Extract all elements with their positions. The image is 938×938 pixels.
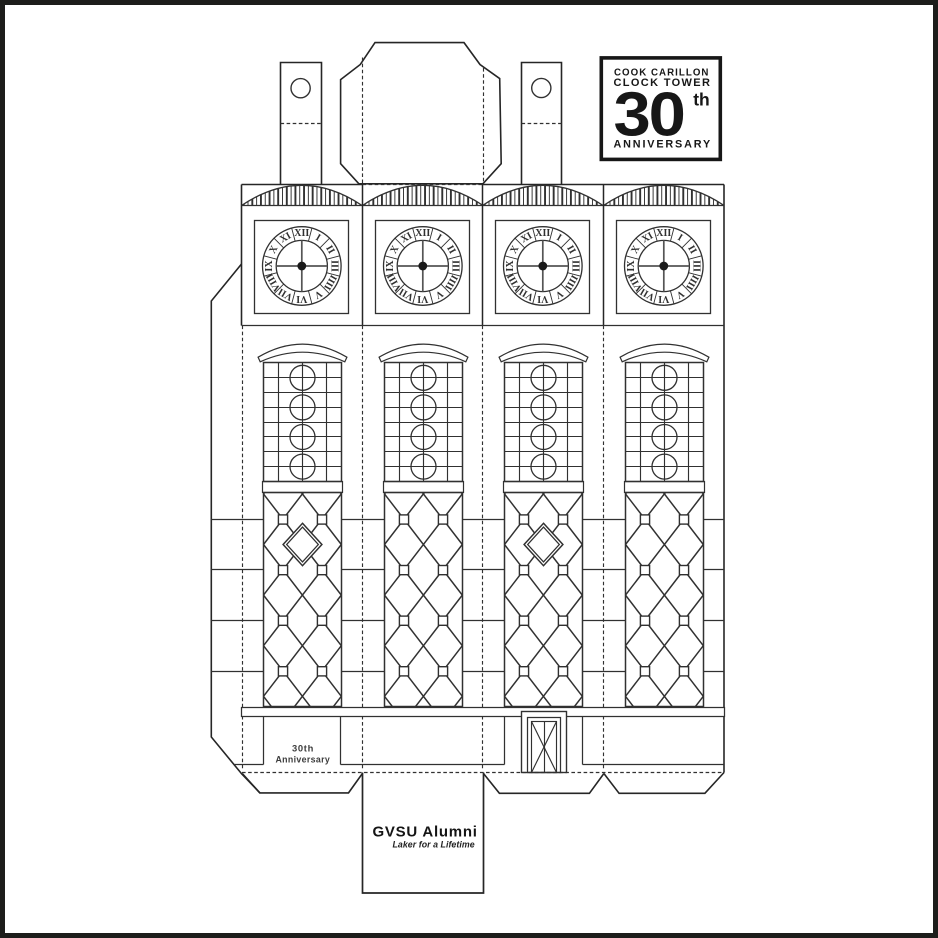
svg-text:XII: XII [656,228,671,239]
svg-text:VI: VI [296,293,307,304]
svg-text:VI: VI [417,293,428,304]
svg-text:IX: IX [626,260,637,272]
svg-text:GVSU Alumni: GVSU Alumni [373,823,478,840]
svg-text:III: III [450,260,461,272]
svg-text:th: th [693,90,710,110]
svg-text:30th: 30th [292,742,314,753]
svg-text:IX: IX [385,260,396,272]
svg-text:IX: IX [264,260,275,272]
svg-text:IX: IX [505,260,516,272]
svg-text:III: III [329,260,340,272]
svg-text:III: III [570,260,581,272]
svg-text:III: III [691,260,702,272]
svg-text:VI: VI [537,293,548,304]
svg-text:ANNIVERSARY: ANNIVERSARY [614,139,713,151]
svg-text:XII: XII [535,228,550,239]
svg-text:XII: XII [294,228,309,239]
svg-text:VI: VI [658,293,669,304]
svg-text:Anniversary: Anniversary [275,755,330,765]
svg-text:Laker for a Lifetime: Laker for a Lifetime [393,840,475,850]
svg-text:XII: XII [415,228,430,239]
